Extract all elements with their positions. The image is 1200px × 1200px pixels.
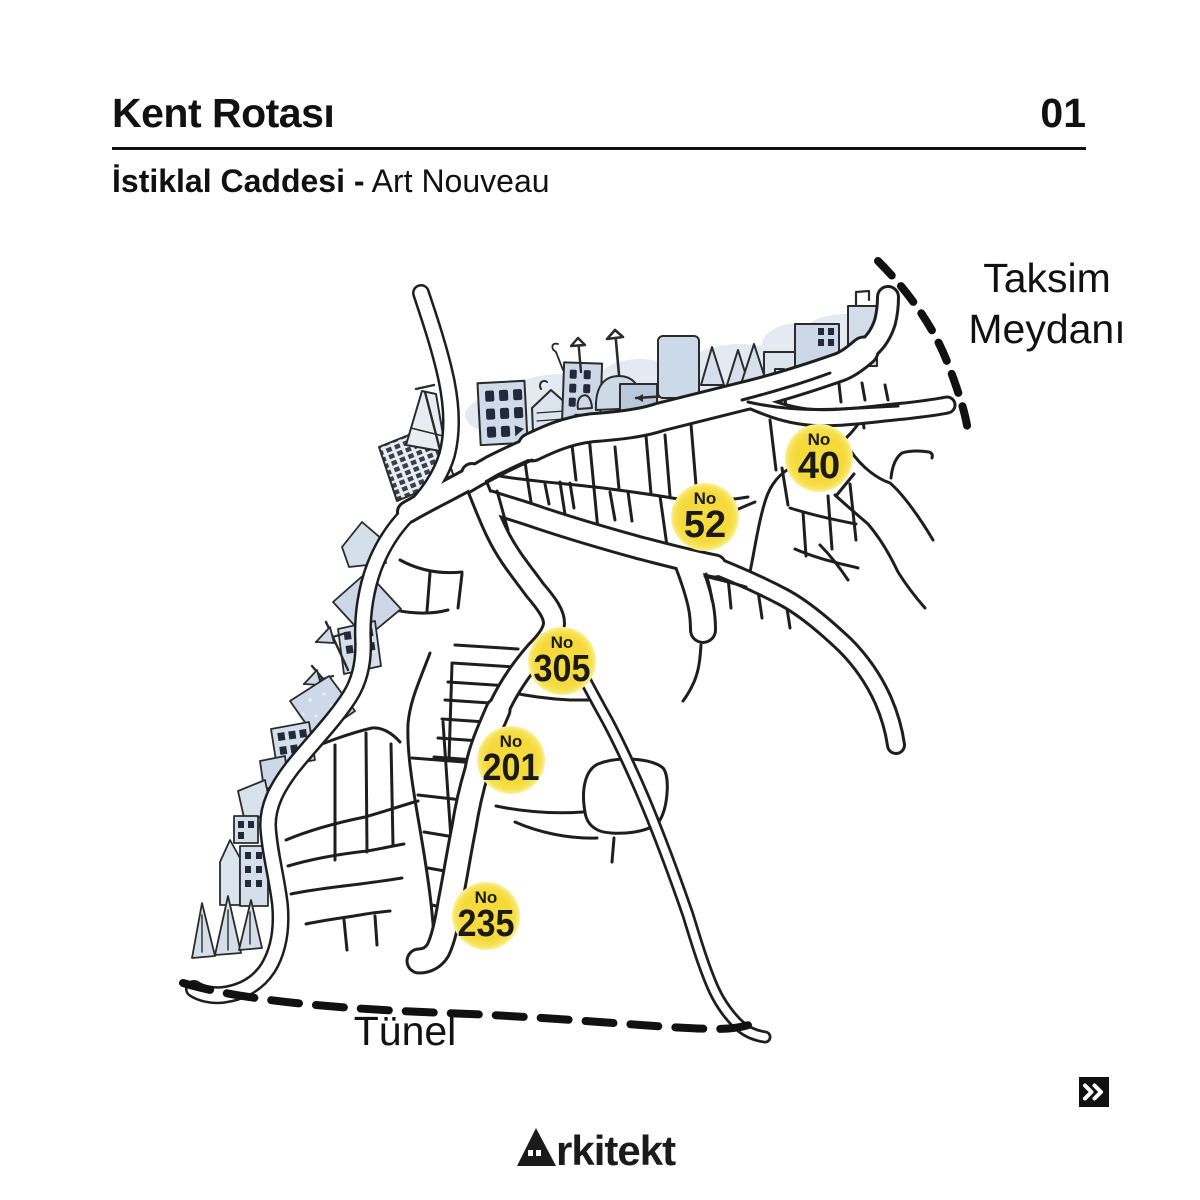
svg-text:01: 01	[1040, 90, 1086, 136]
svg-text:40: 40	[798, 445, 840, 487]
svg-text:52: 52	[684, 504, 726, 546]
svg-text:Tünel: Tünel	[354, 1008, 457, 1054]
svg-text:305: 305	[534, 648, 591, 690]
svg-text:rkitekt: rkitekt	[556, 1127, 676, 1174]
svg-text:235: 235	[458, 903, 515, 945]
svg-text:Taksim: Taksim	[983, 255, 1111, 301]
svg-text:201: 201	[483, 747, 540, 789]
svg-text:Kent Rotası: Kent Rotası	[112, 90, 334, 136]
svg-text:İstiklal Caddesi - Art Nouveau: İstiklal Caddesi - Art Nouveau	[112, 163, 550, 199]
svg-text:Meydanı: Meydanı	[968, 306, 1125, 352]
